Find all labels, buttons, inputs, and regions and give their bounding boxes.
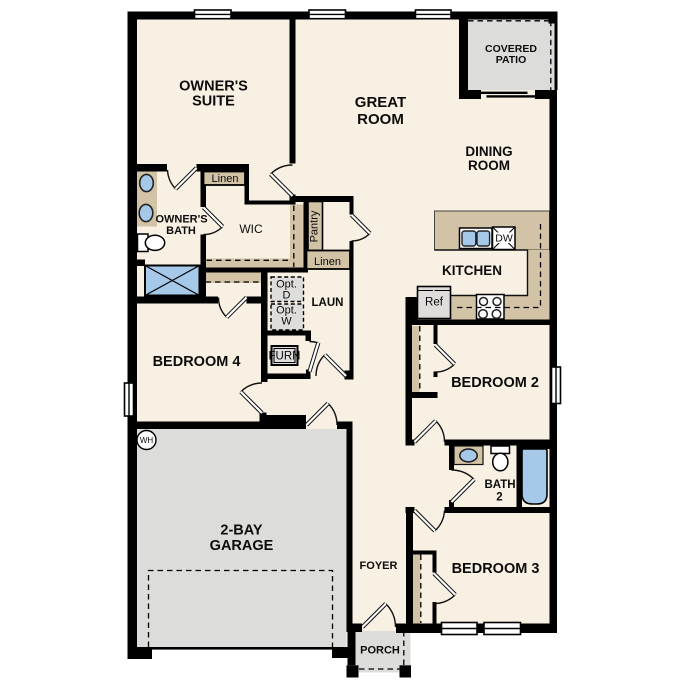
svg-text:PATIO: PATIO (496, 54, 527, 66)
svg-text:BATH: BATH (166, 225, 196, 237)
svg-text:Ref: Ref (425, 297, 444, 309)
svg-text:D: D (283, 290, 291, 302)
svg-text:DW: DW (495, 233, 513, 245)
svg-text:BEDROOM 2: BEDROOM 2 (451, 375, 539, 391)
svg-text:2-BAY: 2-BAY (220, 523, 263, 539)
svg-text:OWNER'S: OWNER'S (179, 79, 248, 95)
svg-text:Pantry: Pantry (309, 210, 321, 242)
svg-text:Linen: Linen (314, 256, 341, 268)
svg-text:FOYER: FOYER (360, 560, 398, 572)
svg-text:DINING: DINING (465, 144, 512, 159)
svg-text:BEDROOM 3: BEDROOM 3 (452, 561, 540, 577)
svg-text:WH: WH (140, 436, 154, 445)
svg-text:BEDROOM 4: BEDROOM 4 (153, 354, 241, 370)
svg-text:BATH: BATH (484, 479, 515, 491)
svg-text:W: W (281, 316, 292, 328)
svg-text:WIC: WIC (239, 222, 263, 236)
svg-text:Linen: Linen (212, 173, 239, 185)
svg-text:2: 2 (496, 492, 502, 504)
svg-text:LAUN: LAUN (312, 297, 344, 309)
svg-text:GREAT: GREAT (355, 94, 406, 111)
svg-text:ROOM: ROOM (357, 111, 404, 128)
svg-text:SUITE: SUITE (192, 94, 235, 110)
svg-text:ROOM: ROOM (468, 158, 510, 173)
svg-text:KITCHEN: KITCHEN (442, 263, 502, 278)
svg-text:FURN: FURN (269, 351, 301, 363)
svg-text:OWNER'S: OWNER'S (155, 214, 207, 226)
svg-text:GARAGE: GARAGE (210, 538, 274, 554)
svg-text:PORCH: PORCH (360, 645, 400, 657)
